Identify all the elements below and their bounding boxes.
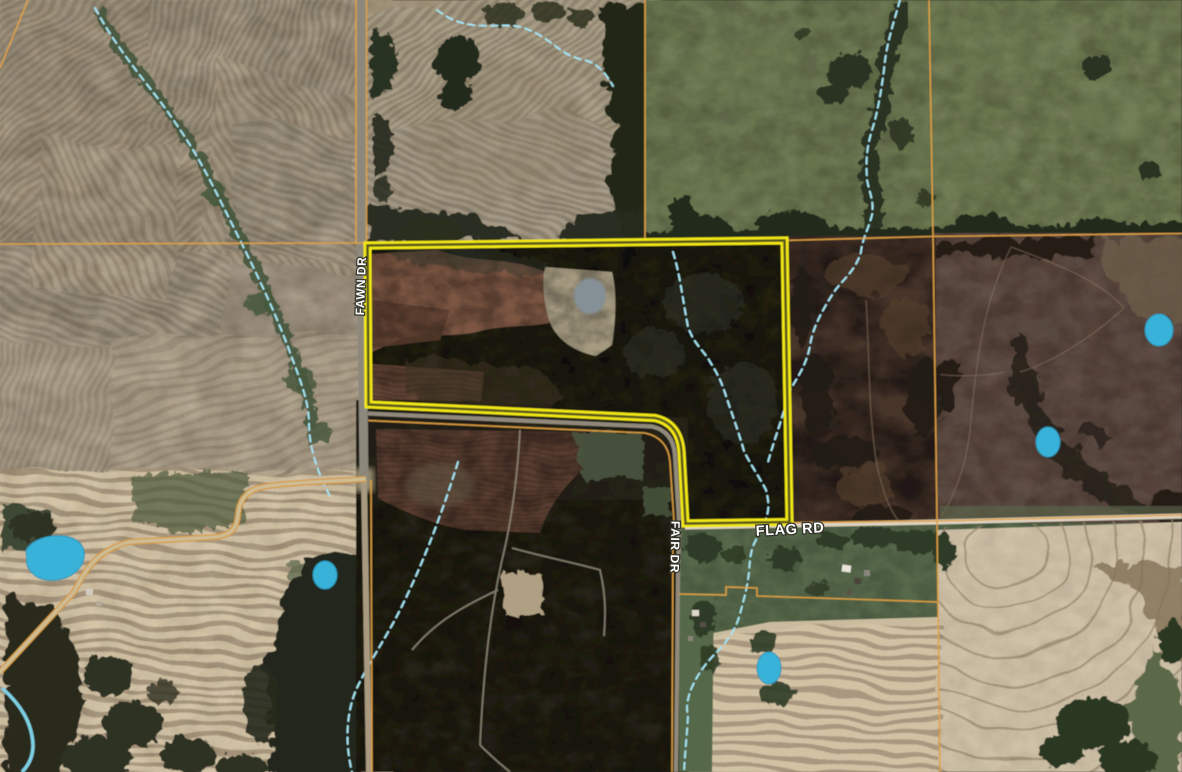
svg-text:FAIR DR: FAIR DR	[668, 521, 683, 573]
svg-text:FAWN DR: FAWN DR	[353, 256, 369, 315]
